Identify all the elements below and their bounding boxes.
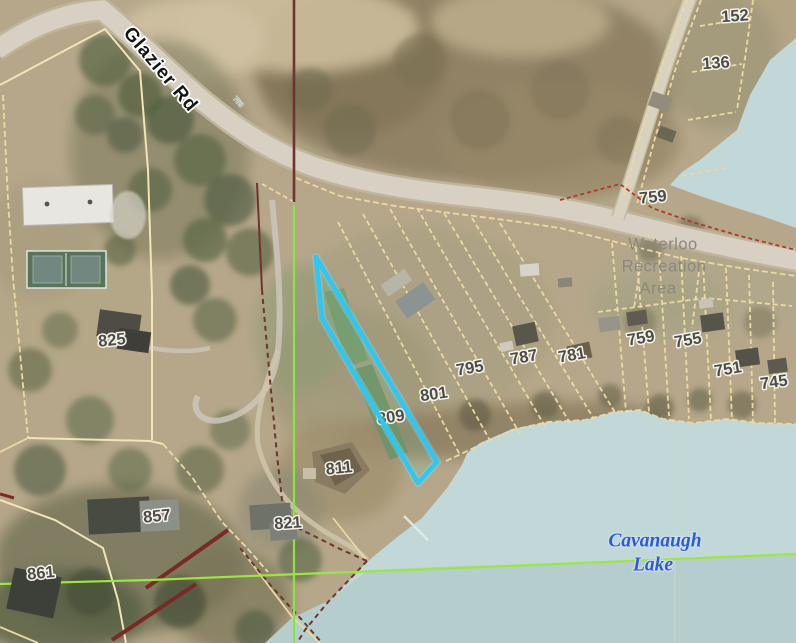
area-label-line2: Recreation xyxy=(622,257,707,275)
parcel-label-759-north: 759 xyxy=(638,187,667,208)
parcel-label-801: 801 xyxy=(419,384,449,406)
lake-label-line2: Lake xyxy=(632,554,673,575)
area-label-line3: Area xyxy=(640,279,677,297)
house-755 xyxy=(700,312,725,332)
parcel-label-811: 811 xyxy=(325,458,353,479)
parcel-label-861: 861 xyxy=(26,563,55,584)
parcel-label-821: 821 xyxy=(274,513,303,533)
area-label-line1: Waterloo xyxy=(628,235,697,253)
map-viewport[interactable]: Glazier Rd 753 152 136 759 795 787 781 7… xyxy=(0,0,796,643)
tennis-courts xyxy=(27,251,106,288)
house-759 xyxy=(598,316,621,333)
parcel-label-136: 136 xyxy=(702,53,731,73)
parcel-label-857: 857 xyxy=(142,506,171,527)
recreation-building xyxy=(22,184,113,225)
lake-label-line1: Cavanaugh xyxy=(608,530,701,551)
parcel-label-745: 745 xyxy=(759,372,789,394)
parcel-label-152: 152 xyxy=(721,6,750,26)
parcel-label-825: 825 xyxy=(97,330,126,351)
map-canvas[interactable]: Glazier Rd 753 152 136 759 795 787 781 7… xyxy=(0,0,796,643)
